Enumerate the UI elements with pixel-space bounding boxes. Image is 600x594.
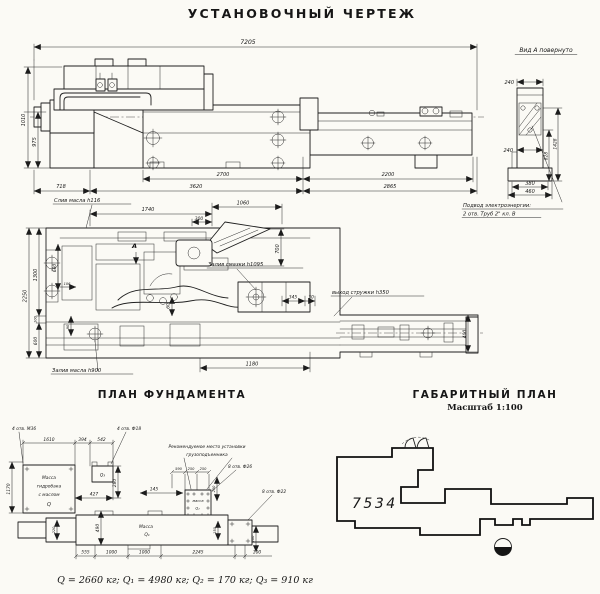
q2-mass-line1: масса — [192, 499, 203, 503]
hoist-recommendation: Рекомендуемое место установки грузоподъе… — [140, 444, 286, 521]
dim-975: 975 — [32, 137, 38, 147]
dim-300: 300 — [195, 216, 204, 222]
dim-145: 145 — [150, 487, 159, 493]
foundation-plan: ПЛАН ФУНДАМЕНТА Масса гидробака с маслом… — [6, 389, 286, 559]
recommended-place-line1: Рекомендуемое место установки — [169, 444, 246, 450]
side-view-machine — [30, 59, 484, 170]
tank-mass-line1: Масса — [42, 475, 56, 481]
machine-outline — [337, 448, 593, 535]
installation-drawing-sheet: УСТАНОВОЧНЫЙ ЧЕРТЕЖ — [0, 0, 600, 594]
dim-1610: 1610 — [43, 437, 54, 443]
hydraulic-tank-outline: Масса гидробака с маслом Q — [23, 465, 75, 513]
q2-mass-line2: Q₂ — [195, 507, 200, 511]
machine-model-label: 7534 — [352, 496, 398, 512]
view-a-title: Вид А повернуто — [519, 47, 573, 54]
document-title: УСТАНОВОЧНЫЙ ЧЕРТЕЖ — [188, 6, 417, 21]
dim-1000a: 1000 — [106, 550, 117, 556]
q2-pad-outline: масса Q₂ — [185, 490, 211, 518]
dim-2245: 2245 — [192, 550, 203, 556]
dim-345: 345 — [289, 295, 298, 301]
dim-30: 30 — [308, 295, 314, 301]
dim-250b: 250 — [200, 467, 208, 471]
q1-mass-line1: Масса — [139, 524, 153, 530]
footer-formula: Q = 2660 кг; Q₁ = 4980 кг; Q₂ = 170 кг; … — [57, 575, 313, 586]
overall-plan-scale: Масштаб 1:100 — [447, 402, 523, 413]
dim-2250: 2250 — [23, 290, 29, 303]
dim-1010: 1010 — [21, 114, 27, 127]
dim-700: 700 — [275, 244, 281, 254]
dim-250a: 250 — [188, 467, 196, 471]
plan-view: А Слив масла h116 1740 300 1060 700 Зали… — [23, 198, 484, 374]
dim-1060: 1060 — [237, 201, 250, 207]
dim-106: 106 — [64, 282, 72, 286]
dim-1170: 1170 — [6, 483, 12, 494]
tank-mass-line4: Q — [47, 502, 51, 508]
dim-200: 200 — [251, 535, 255, 543]
dim-490: 490 — [95, 524, 101, 533]
dim-394: 394 — [78, 437, 87, 443]
oil-drain-label: Слив масла h116 — [54, 198, 101, 204]
q3-label: Q₃ — [100, 473, 105, 479]
dim-400: 400 — [462, 330, 468, 339]
tank-mass-line3: с маслом — [38, 493, 60, 498]
dim-150: 150 — [213, 526, 217, 534]
view-a: Вид А повернуто 240 240 828 1428 — [462, 47, 577, 218]
q1-mass-line2: Q₁ — [144, 532, 149, 538]
mass-values-text: Q = 2660 кг; Q₁ = 4980 кг; Q₂ = 170 кг; … — [57, 575, 313, 586]
dim-1000b: 1000 — [139, 550, 150, 556]
plan-view-machine: А — [44, 222, 483, 358]
chip-exit-label: выход стружки h350 — [332, 290, 390, 296]
power-note-line1: Подвод электроэнергии: — [463, 203, 531, 209]
dim-60: 60 — [166, 303, 172, 309]
dim-3620: 3620 — [190, 184, 203, 190]
m36-holes-label: 4 отв. М36 — [12, 426, 36, 432]
overall-plan-title: ГАБАРИТНЫЙ ПЛАН — [412, 388, 557, 401]
dim-542: 542 — [97, 437, 106, 443]
view-a-column — [508, 88, 552, 181]
dim-600: 600 — [33, 337, 39, 346]
dim-460: 460 — [525, 189, 535, 195]
recommended-place-line2: грузоподъемника — [186, 453, 228, 458]
foundation-plan-title: ПЛАН ФУНДАМЕНТА — [98, 389, 247, 401]
dim-828: 828 — [544, 152, 550, 161]
overall-plan: ГАБАРИТНЫЙ ПЛАН Масштаб 1:100 7534 — [337, 388, 593, 556]
dim-100: 100 — [34, 315, 38, 323]
f22-holes-label: 8 отв. Ф22 — [262, 489, 286, 495]
dim-680: 680 — [52, 264, 58, 273]
side-view: 7205 1010 975 2700 2200 718 3620 2865 — [21, 39, 484, 194]
dim-718: 718 — [56, 184, 66, 190]
dim-2865: 2865 — [384, 184, 397, 190]
dim-2200: 2200 — [382, 172, 395, 178]
dim-1740: 1740 — [142, 207, 155, 213]
oil-fill-label: Залив масла h900 — [52, 368, 102, 374]
dim-240-mid: 240 — [503, 148, 513, 154]
dim-250v: 250 — [212, 485, 216, 493]
dim-555: 555 — [81, 550, 90, 556]
dim-90: 90 — [66, 324, 70, 329]
dim-7205: 7205 — [240, 39, 255, 46]
dim-1180: 1180 — [246, 362, 259, 368]
outline-fan-detail — [402, 437, 431, 448]
q3-pad-outline: Q₃ — [92, 462, 113, 482]
dim-100: 100 — [253, 550, 262, 556]
reference-point-icon — [495, 539, 512, 556]
tank-mass-line2: гидробака — [37, 484, 62, 490]
f18-holes-label: 4 отв. Ф18 — [117, 426, 141, 432]
dim-1428: 1428 — [553, 138, 559, 149]
dim-220: 220 — [52, 526, 56, 534]
dim-280: 280 — [112, 479, 118, 488]
view-a-arrow-label: А — [131, 242, 137, 250]
dim-590: 590 — [175, 467, 183, 471]
power-note-line2: 2 отв. Труб 2" кл. В — [463, 212, 516, 218]
dim-427: 427 — [90, 492, 99, 498]
dim-380: 380 — [525, 181, 535, 187]
f26-holes-label: 8 отв. Ф26 — [228, 464, 252, 470]
dim-2700: 2700 — [217, 172, 230, 178]
drawing-canvas: УСТАНОВОЧНЫЙ ЧЕРТЕЖ — [0, 0, 600, 594]
dim-1300: 1300 — [33, 269, 39, 282]
grease-fill-label: Залив смазки h1095 — [208, 262, 264, 268]
dim-240-top: 240 — [504, 80, 514, 86]
